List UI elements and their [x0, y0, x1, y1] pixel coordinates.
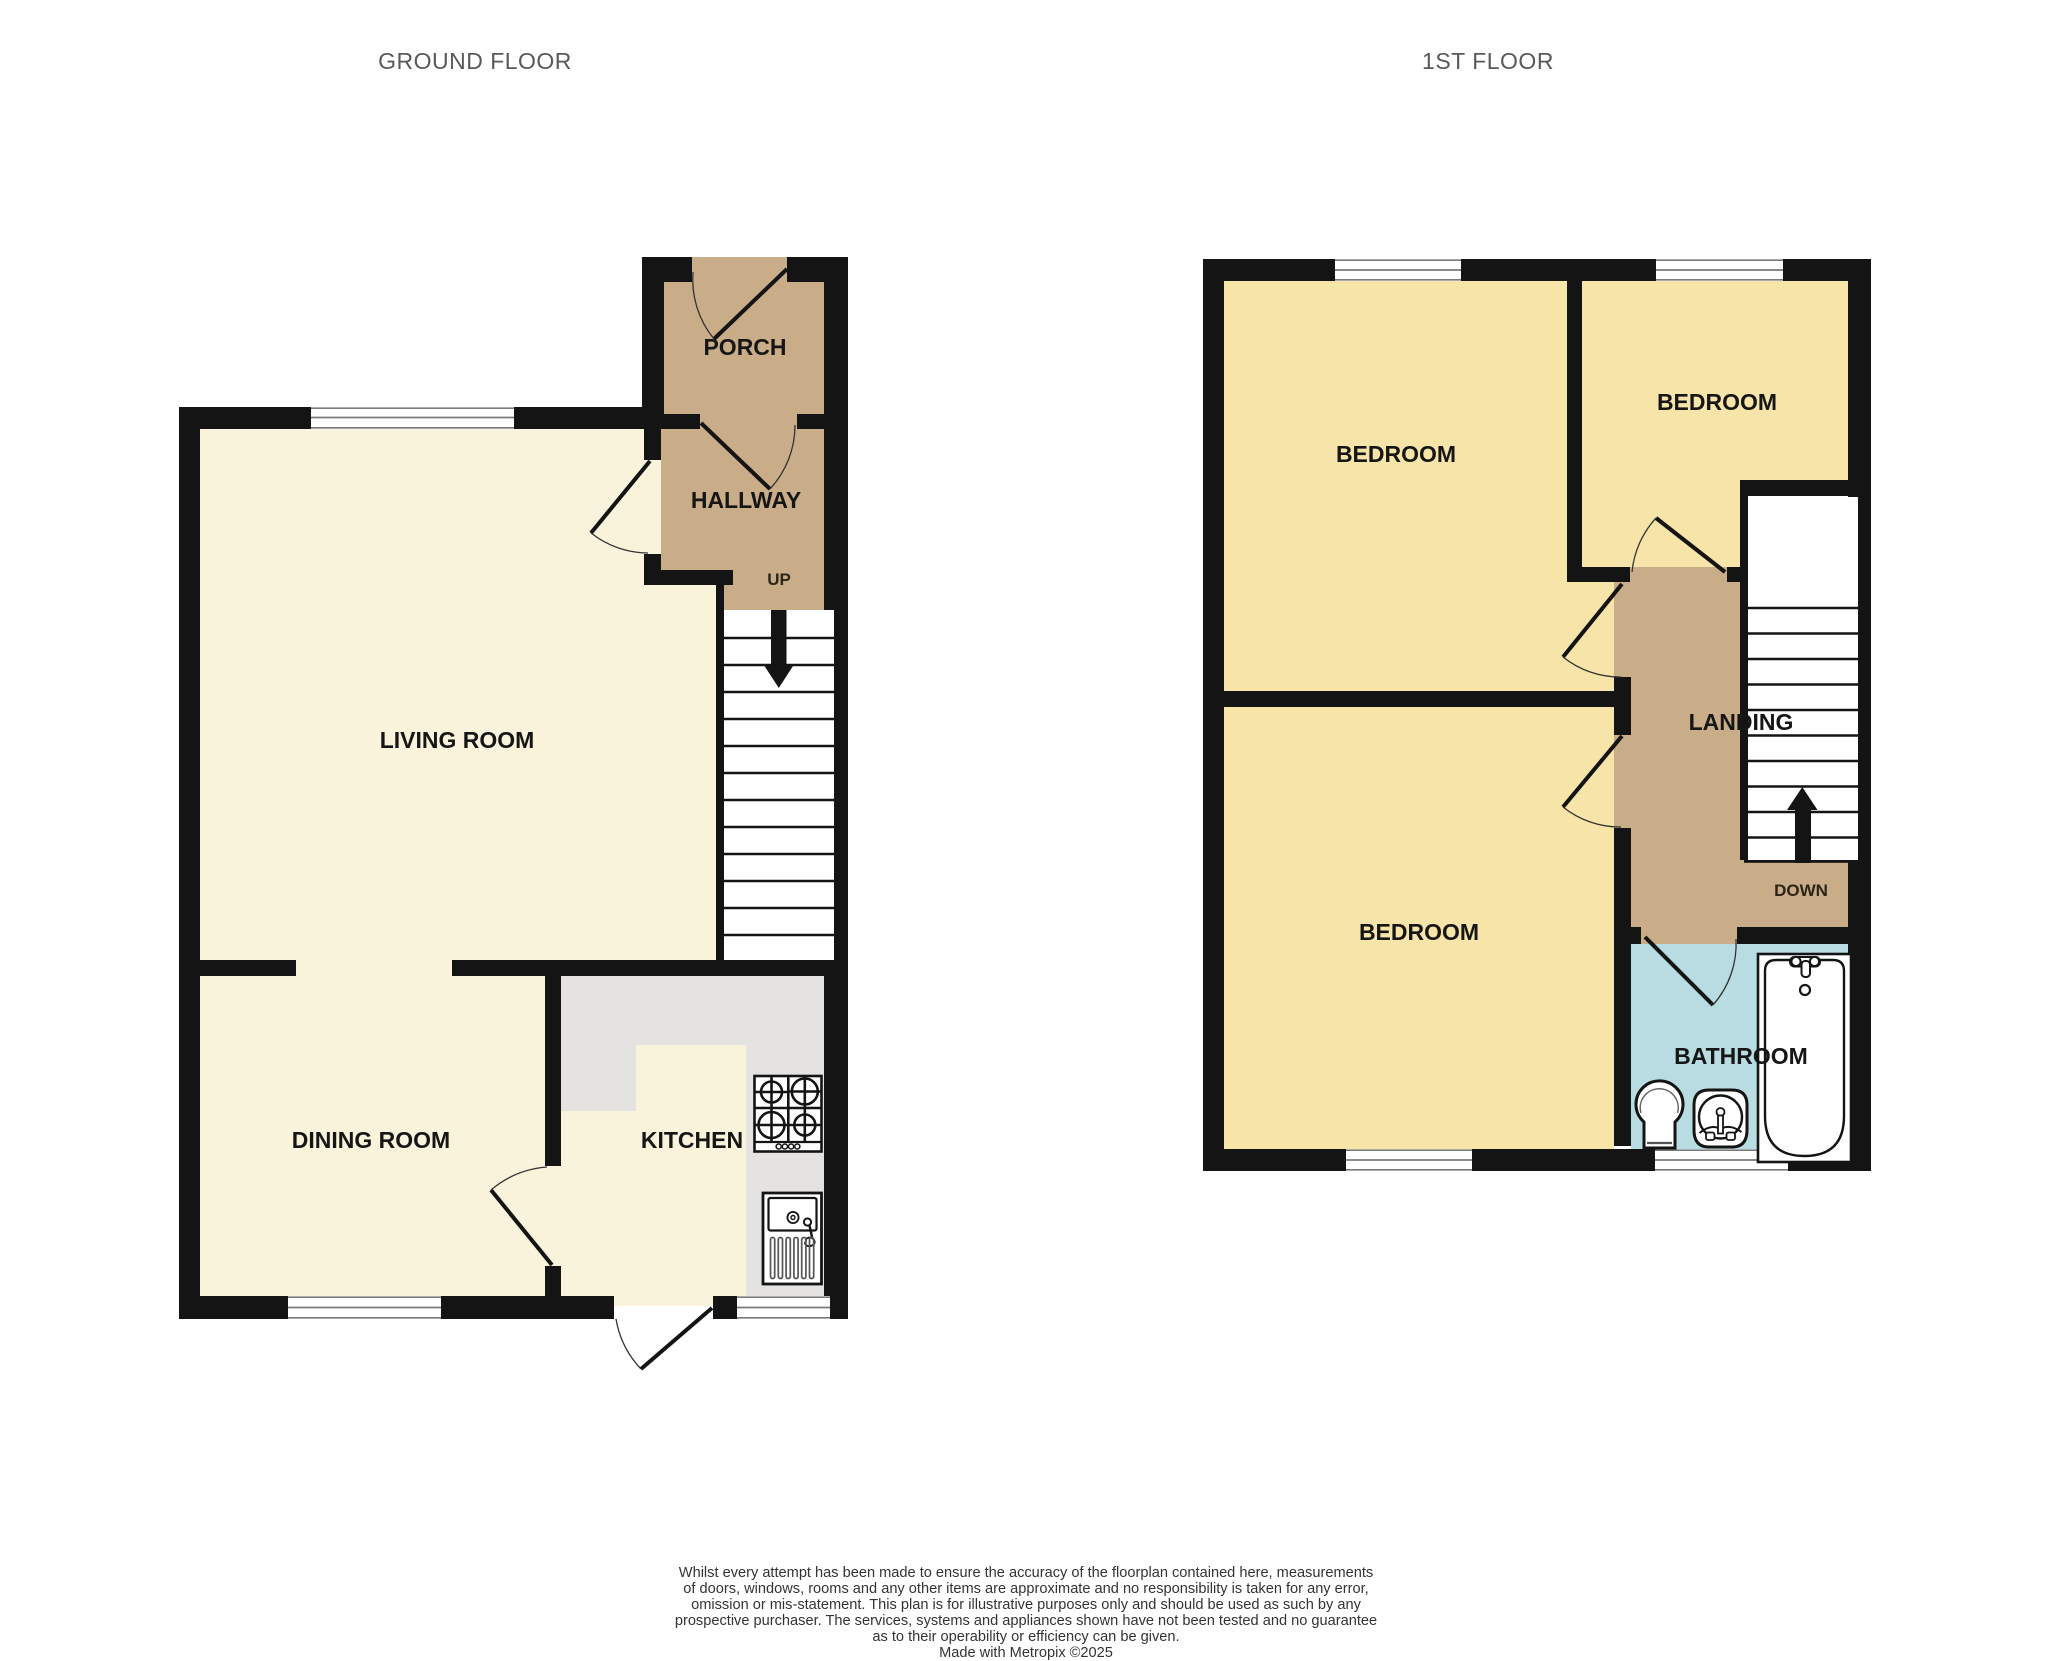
svg-text:KITCHEN: KITCHEN	[641, 1127, 743, 1153]
svg-text:BEDROOM: BEDROOM	[1359, 919, 1479, 945]
svg-text:DOWN: DOWN	[1774, 881, 1828, 900]
svg-text:as to their operability or eff: as to their operability or efficiency ca…	[872, 1629, 1179, 1645]
svg-text:LANDING: LANDING	[1689, 709, 1794, 735]
svg-text:BEDROOM: BEDROOM	[1657, 389, 1777, 415]
svg-text:BEDROOM: BEDROOM	[1336, 441, 1456, 467]
svg-text:HALLWAY: HALLWAY	[691, 487, 801, 513]
svg-text:UP: UP	[767, 570, 791, 589]
svg-text:prospective purchaser. The ser: prospective purchaser. The services, sys…	[675, 1613, 1377, 1629]
svg-text:of doors, windows, rooms and a: of doors, windows, rooms and any other i…	[683, 1581, 1368, 1597]
svg-text:Made with Metropix ©2025: Made with Metropix ©2025	[939, 1645, 1113, 1661]
svg-text:BATHROOM: BATHROOM	[1674, 1043, 1808, 1069]
svg-text:omission or mis-statement. Thi: omission or mis-statement. This plan is …	[691, 1597, 1361, 1613]
svg-text:PORCH: PORCH	[703, 334, 786, 360]
svg-text:GROUND FLOOR: GROUND FLOOR	[378, 48, 572, 74]
svg-text:1ST FLOOR: 1ST FLOOR	[1422, 48, 1554, 74]
svg-text:LIVING ROOM: LIVING ROOM	[380, 727, 535, 753]
svg-text:Whilst every attempt has been: Whilst every attempt has been made to en…	[679, 1565, 1373, 1581]
svg-text:DINING ROOM: DINING ROOM	[292, 1127, 450, 1153]
